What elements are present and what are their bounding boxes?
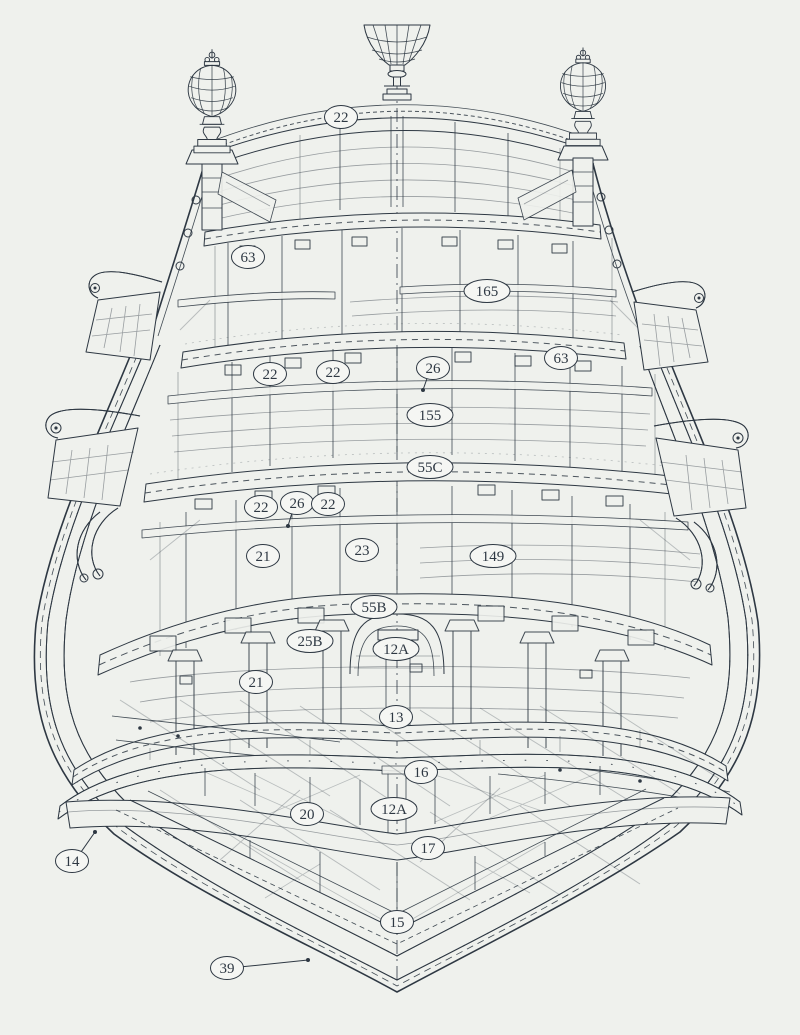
part-label-39: 39 bbox=[211, 957, 311, 980]
svg-text:165: 165 bbox=[476, 284, 499, 300]
part-label-22: 22 bbox=[254, 363, 287, 386]
part-label-63: 63 bbox=[232, 246, 265, 269]
part-label-22: 22 bbox=[325, 106, 358, 129]
svg-text:22: 22 bbox=[321, 497, 336, 513]
stern-lantern-center bbox=[364, 25, 430, 100]
part-label-15: 15 bbox=[381, 911, 414, 934]
part-label-21: 21 bbox=[240, 671, 273, 694]
part-label-55c: 55C bbox=[407, 456, 453, 479]
stern-lantern-right bbox=[560, 48, 605, 146]
svg-text:26: 26 bbox=[426, 361, 442, 377]
svg-text:55B: 55B bbox=[361, 600, 386, 616]
svg-text:155: 155 bbox=[419, 408, 442, 424]
part-label-16: 16 bbox=[405, 761, 438, 784]
svg-text:23: 23 bbox=[355, 543, 370, 559]
part-label-63: 63 bbox=[545, 347, 578, 370]
part-label-22: 22 bbox=[245, 496, 278, 519]
svg-text:149: 149 bbox=[482, 549, 505, 565]
part-label-12a: 12A bbox=[373, 638, 419, 661]
svg-text:22: 22 bbox=[334, 110, 349, 126]
svg-text:12A: 12A bbox=[381, 802, 407, 818]
part-label-155: 155 bbox=[407, 404, 453, 427]
svg-text:25B: 25B bbox=[297, 634, 322, 650]
part-label-165: 165 bbox=[464, 280, 510, 303]
part-label-13: 13 bbox=[380, 706, 413, 729]
ship-stern-cross-section: 22631656326222215555C222622212314955B25B… bbox=[0, 0, 800, 1035]
svg-text:14: 14 bbox=[65, 854, 81, 870]
svg-text:16: 16 bbox=[414, 765, 430, 781]
svg-text:15: 15 bbox=[390, 915, 405, 931]
svg-text:20: 20 bbox=[300, 807, 315, 823]
svg-text:21: 21 bbox=[256, 549, 271, 565]
paper-cut-bottom bbox=[0, 928, 800, 1035]
part-label-20: 20 bbox=[291, 803, 324, 826]
svg-text:13: 13 bbox=[389, 710, 404, 726]
part-label-22: 22 bbox=[312, 493, 345, 516]
drawing-canvas: 22631656326222215555C222622212314955B25B… bbox=[0, 0, 800, 1035]
taffrail-carving bbox=[205, 105, 594, 168]
svg-text:22: 22 bbox=[326, 365, 341, 381]
svg-text:39: 39 bbox=[220, 961, 235, 977]
part-label-21: 21 bbox=[247, 545, 280, 568]
quarter-gallery-right bbox=[632, 282, 748, 592]
part-label-22: 22 bbox=[317, 361, 350, 384]
svg-text:12A: 12A bbox=[383, 642, 409, 658]
svg-text:63: 63 bbox=[554, 351, 569, 367]
deck-beam-55c bbox=[144, 453, 672, 509]
svg-text:55C: 55C bbox=[417, 460, 442, 476]
part-label-55b: 55B bbox=[351, 596, 397, 619]
part-label-17: 17 bbox=[412, 837, 445, 860]
stern-lantern-left bbox=[188, 49, 236, 153]
svg-text:26: 26 bbox=[290, 496, 306, 512]
svg-text:63: 63 bbox=[241, 250, 256, 266]
svg-text:22: 22 bbox=[263, 367, 278, 383]
part-label-25b: 25B bbox=[287, 630, 333, 653]
svg-text:21: 21 bbox=[249, 675, 264, 691]
part-label-149: 149 bbox=[470, 545, 516, 568]
part-label-23: 23 bbox=[346, 539, 379, 562]
deck-beam-poop bbox=[204, 213, 601, 255]
part-label-14: 14 bbox=[56, 830, 98, 873]
svg-text:17: 17 bbox=[421, 841, 437, 857]
svg-text:22: 22 bbox=[254, 500, 269, 516]
part-label-12a: 12A bbox=[371, 798, 417, 821]
